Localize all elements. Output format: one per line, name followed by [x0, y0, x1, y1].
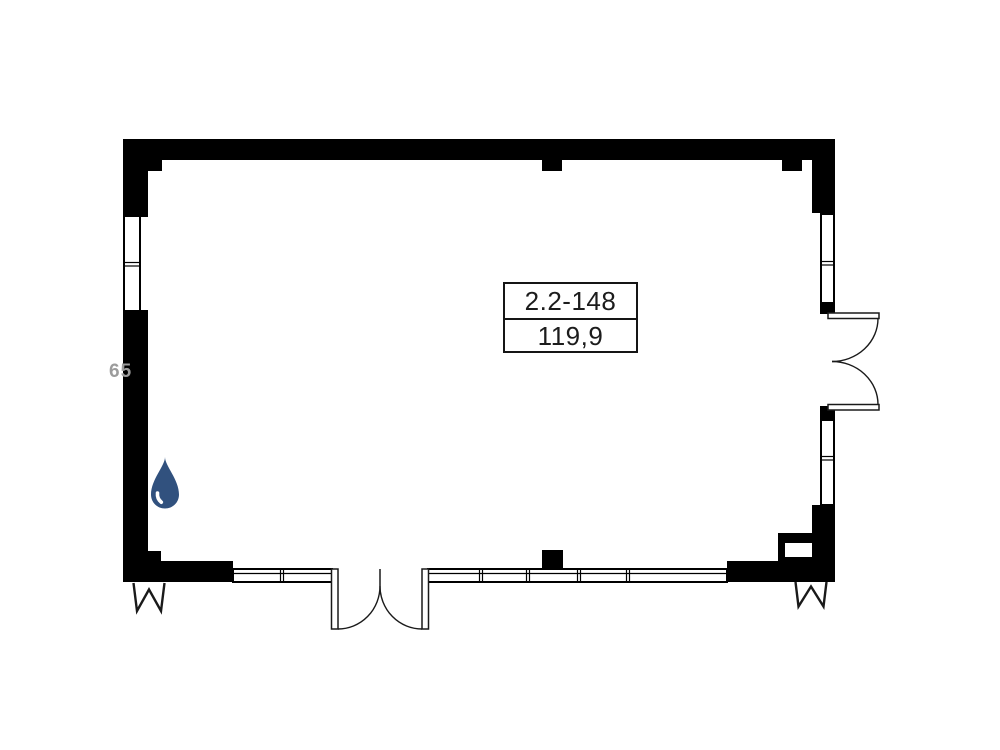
unit-label-box: 2.2-148 119,9 [503, 282, 638, 353]
door-swing-arc [380, 586, 422, 629]
door-swing-arc [832, 362, 878, 405]
windows [124, 214, 834, 582]
wall-left-upper [123, 139, 148, 217]
watermark-text: 65 [109, 361, 132, 383]
door-jamb [332, 569, 339, 629]
wall-stub-top-center [542, 160, 562, 171]
wall-notch-bottom-right [785, 543, 812, 557]
unit-id-label: 2.2-148 [505, 284, 636, 320]
floor-plan-page: 2.2-148 119,9 65 [0, 0, 1000, 750]
door-swing-arc [832, 319, 878, 362]
door-double-right [828, 313, 879, 410]
wall-top [123, 139, 835, 160]
wall-left-lower [123, 310, 148, 582]
door-double-bottom [332, 569, 429, 629]
entrance-arrow-icon [134, 583, 165, 611]
unit-area-label: 119,9 [505, 320, 636, 351]
wall-bottom-left [123, 561, 233, 582]
window-bottom-left [233, 569, 332, 582]
window-right-wall-lower [821, 420, 834, 505]
window-right-wall-upper [821, 214, 834, 303]
wall-right-lower [812, 505, 835, 582]
door-leaf [828, 313, 879, 319]
entrance-arrow-icon [796, 582, 827, 607]
door-swing-arc [338, 586, 380, 629]
walls [123, 139, 835, 582]
wall-right-upper [812, 139, 835, 213]
window-left-wall [124, 216, 140, 311]
floor-plan-drawing [0, 0, 1000, 750]
door-leaf [828, 405, 879, 411]
water-drop-icon [151, 457, 179, 509]
window-bottom-right [428, 569, 727, 582]
wall-step-top-left [148, 160, 162, 171]
wall-step-top-right [782, 160, 802, 171]
door-jamb [422, 569, 429, 629]
wall-stub-bottom-center [542, 550, 563, 570]
